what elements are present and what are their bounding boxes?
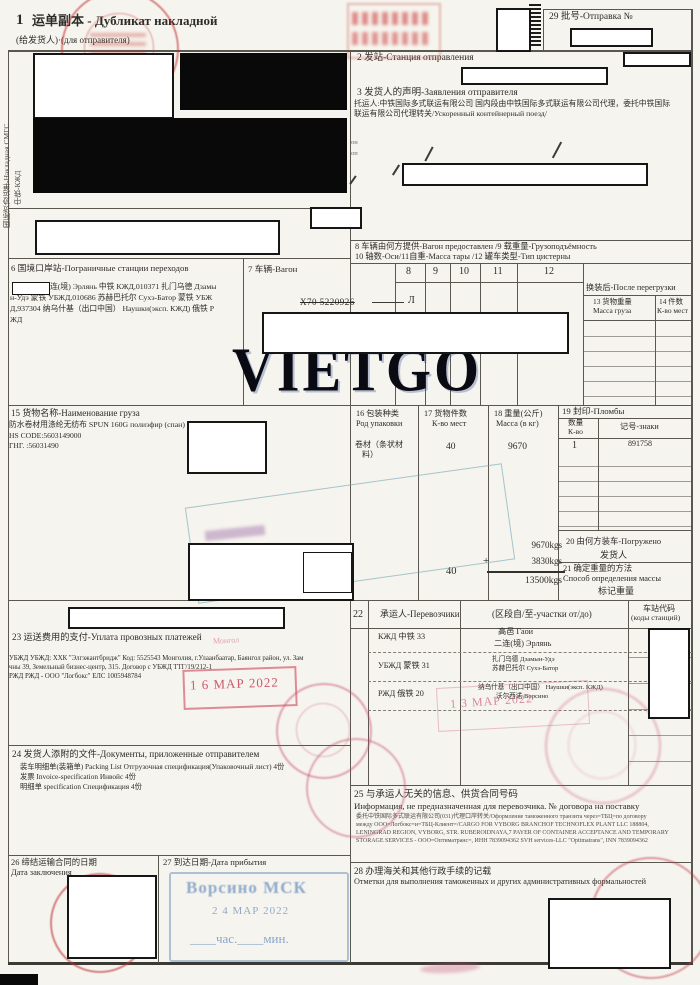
box18-label-ru: Масса (в кг) (496, 419, 539, 428)
margin-vertical-text: 国际货协运单-Накладная СМГС (1, 58, 12, 228)
grid-line (558, 438, 692, 439)
pen-mark (424, 146, 433, 161)
gng-code: ГНГ. :56031490 (9, 442, 59, 451)
box14-label-ru: К-во мест (657, 307, 688, 316)
col-9: 9 (433, 266, 438, 278)
box19-qty-label-ru: К-во (568, 428, 583, 437)
box22-section-header: (区段自/至-участки от/до) (492, 609, 592, 619)
box23-line3: РЖД РЖД - ООО "Логбокс" ЕЛС 1005948784 (9, 673, 141, 681)
box18-label-zh: 18 重量(公斤) (494, 409, 542, 418)
date-stamp-16mar: 1 6 МАР 2022 (190, 675, 279, 693)
box28-label-zh: 28 办理海关和其他行政手续的记载 (354, 866, 491, 876)
redaction-box (67, 875, 157, 959)
smgs-waybill-page: 国际货协运单-Накладная СМГС 中铁-КЖД 1 运单副本 - Ду… (0, 0, 700, 985)
redaction-box (548, 898, 671, 969)
pen-line (372, 302, 404, 303)
route-to-2: 苏赫巴托尔 Сухэ-Батор (492, 665, 558, 673)
redaction-box (303, 552, 352, 593)
carrier-row-1: КЖД 中铁 33 (378, 632, 425, 641)
col-8: 8 (406, 266, 411, 278)
text-fragment: он (351, 139, 358, 146)
route-from-2: 扎门乌德 Дзамын-Удэ (492, 656, 555, 664)
box15-label: 15 货物名称-Наименование груза (11, 408, 140, 418)
rule-line (368, 681, 692, 682)
box6-line2: н-Удэ 蒙铁 УБЖД,010686 苏赫巴托尔 Сухэ-Батор 蒙铁… (10, 294, 212, 303)
wagon-mark: Л (408, 295, 415, 307)
box6-line4: ЖД (10, 316, 22, 325)
seal-qty: 1 (572, 440, 577, 452)
stamp-fragment-text: Монгол (213, 635, 240, 646)
box25-line1: 委托中铁国际多式联运有限公司(031)代理口岸转关/Оформление там… (356, 814, 647, 821)
pink-round-stamp-2 (306, 738, 406, 838)
redaction-box (570, 28, 653, 47)
box3-line2: 联运有限公司代理转关/Ускоренный контейнерный поезд… (354, 110, 547, 119)
box16-value-2: 料） (362, 450, 378, 459)
margin-vertical-text-2: 中铁-КЖД (12, 95, 23, 205)
box21-label-zh: 21 确定重量的方法 (563, 564, 632, 574)
redaction-box (623, 52, 691, 67)
grid-line (350, 263, 692, 264)
col-12: 12 (544, 266, 554, 278)
redaction-box (35, 220, 280, 255)
arrival-time: ____час.____мин. (190, 932, 289, 947)
grid-line (8, 208, 350, 209)
box22-carrier-header: 承运人-Перевозчики (380, 609, 460, 619)
grid-line (583, 320, 692, 321)
box21-label-ru: Способ определения массы (563, 574, 661, 584)
box24-doc-2: 发票 Invoice-specification Инвойс 4份 (20, 773, 136, 781)
box22-codes-header-zh: 车站代码 (643, 604, 675, 613)
box8-label-line2: 10 轴数-Оси/11自重-Масса тары /12 罐车类型-Тип ц… (355, 252, 570, 262)
box20-label: 20 由何方装车-Погружено (566, 537, 661, 547)
grid-line (350, 240, 692, 241)
box20-value: 发货人 (600, 550, 627, 560)
box16-value-1: 卷材（条状材 (355, 440, 403, 449)
seal-marks: 891758 (628, 439, 652, 448)
grid-line (558, 530, 692, 531)
box26-label-zh: 26 缔结运输合同的日期 (11, 858, 97, 868)
box21-value: 标记重量 (598, 586, 634, 596)
ruled-area-13-14 (584, 322, 691, 404)
redaction-box (402, 163, 648, 186)
redaction-box (33, 118, 347, 193)
box13-header: 换装后-После перегрузки (586, 283, 676, 292)
pen-mark (392, 164, 400, 175)
text-fragment: оп (351, 150, 358, 157)
grid-line (158, 855, 159, 963)
box17-label-zh: 17 货物件数 (424, 409, 467, 418)
carrier-row-3: РЖД 俄铁 20 (378, 689, 424, 698)
box25-line4: STORAGE SERVICES - ООО=Оптиматранс=, ИНН… (356, 838, 648, 845)
box1-number: 1 (16, 12, 24, 29)
box19-marks-label: 记号-знаки (620, 422, 659, 431)
box22-codes-header-ru: (коды станций) (631, 614, 680, 623)
box18-value: 9670 (508, 442, 527, 453)
box25-line2: между ООО=Логбокс=и=ТБЦ-Клиент=/CARGO FO… (356, 822, 649, 829)
box6-label: 6 国境口岸站-Пограничные станции переходов (11, 263, 189, 273)
box19-label: 19 封印-Пломбы (562, 406, 624, 416)
red-seal-frame (347, 3, 441, 59)
box8-label-line1: 8 车辆由何方提供-Вагон предоставлен /9 载重量-Груз… (355, 242, 597, 252)
sum-line (487, 571, 565, 573)
wagon-number: X70 5220926 (300, 297, 355, 307)
box29-label: 29 批号-Отправка № (549, 12, 633, 23)
redaction-box (12, 282, 50, 295)
redaction-box (461, 67, 608, 85)
grid-line (691, 9, 693, 964)
box3-line1: 托运人:中铁国际多式联运有限公司 国内段由中铁国际多式联运有限公司代理，委托中铁… (354, 100, 670, 109)
grid-line (558, 562, 692, 563)
rule-line (368, 652, 692, 653)
box3-label: 3 发货人的声明-Заявления отправителя (357, 88, 518, 99)
weight-total: 13500kgs (502, 576, 562, 587)
redaction-box (180, 53, 347, 110)
ruled-area-seals (559, 452, 691, 528)
box24-doc-3: 明细单 specification Спецификация 4份 (20, 783, 142, 791)
route-from-1: 高邑 Гаои (498, 627, 533, 636)
grid-line (395, 282, 583, 283)
box24-label: 24 发货人添附的文件-Документы, приложенные отпра… (12, 749, 259, 760)
arrival-date: 2 4 МАР 2022 (212, 905, 289, 918)
box17-label-ru: К-во мест (432, 419, 466, 428)
cargo-name: 防水卷材用涤纶无纺布 SPUN 160G полиэфир (спан) 1 (9, 421, 191, 430)
redaction-box (648, 628, 690, 719)
carrier-row-2: УБЖД 蒙铁 31 (378, 661, 430, 670)
arrival-station: Ворсино МСК (186, 878, 307, 898)
box13-label-ru: Масса груза (593, 307, 631, 316)
pink-round-stamp-3-inner (568, 711, 636, 779)
box23-label: 23 运送费用的支付-Уплата провозных платежей (12, 632, 202, 643)
redaction-box (262, 312, 569, 354)
box6-line3: Д,937304 纳乌什基（出口中国） Наушки(эксп. КЖД) 俄铁… (10, 305, 214, 314)
route-to-1: 二连(境) Эрлянь (494, 639, 551, 648)
box23-line1: УБЖД УБЖД: ХХК "Элгэжантбридж" Код: 5525… (9, 655, 303, 663)
grid-line (8, 258, 350, 259)
col-10: 10 (459, 266, 469, 278)
box16-label-zh: 16 包装种类 (356, 409, 399, 418)
box25-line3: LENINGRAD REGION, VYBORG, STR. RUBEROIDN… (356, 830, 669, 837)
box26-label-ru: Дата заключения (11, 868, 72, 878)
redaction-box (496, 8, 531, 52)
box24-doc-1: 装车明细单(装箱单) Packing List Отгрузочная спец… (20, 763, 284, 771)
redaction-box (0, 974, 38, 985)
redaction-box (310, 207, 362, 229)
hs-code: HS CODE:5603149000 (9, 432, 81, 441)
box7-label: 7 车辆-Вагон (248, 264, 297, 274)
grid-line (583, 295, 692, 296)
pen-mark (552, 142, 562, 159)
box6-line1: 连(境) Эрлянь 中铁 КЖД,010371 扎门乌德 Дзамы (50, 283, 217, 292)
box22-number: 22 (353, 609, 363, 621)
box17-value: 40 (446, 442, 456, 453)
grid-line (8, 855, 350, 856)
col-11: 11 (493, 266, 503, 278)
redaction-box (33, 53, 174, 119)
box27-label: 27 到达日期-Дата прибытия (163, 858, 266, 868)
box16-label-ru: Род упаковки (356, 419, 402, 428)
redaction-box (68, 607, 285, 629)
redaction-box (187, 421, 267, 474)
